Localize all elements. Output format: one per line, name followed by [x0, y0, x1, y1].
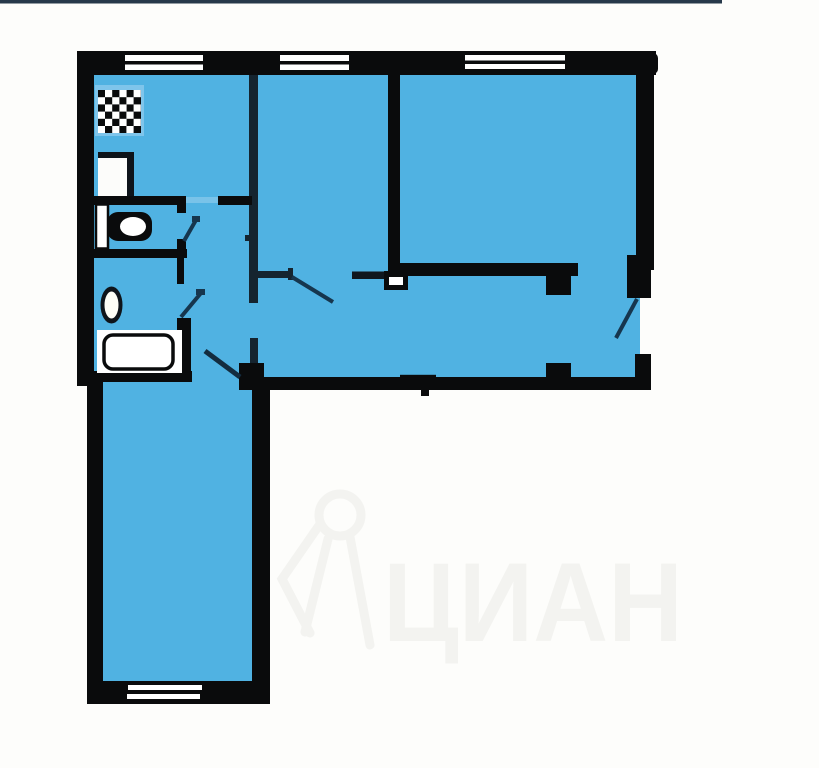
svg-text:ЦИАН: ЦИАН [383, 540, 683, 665]
